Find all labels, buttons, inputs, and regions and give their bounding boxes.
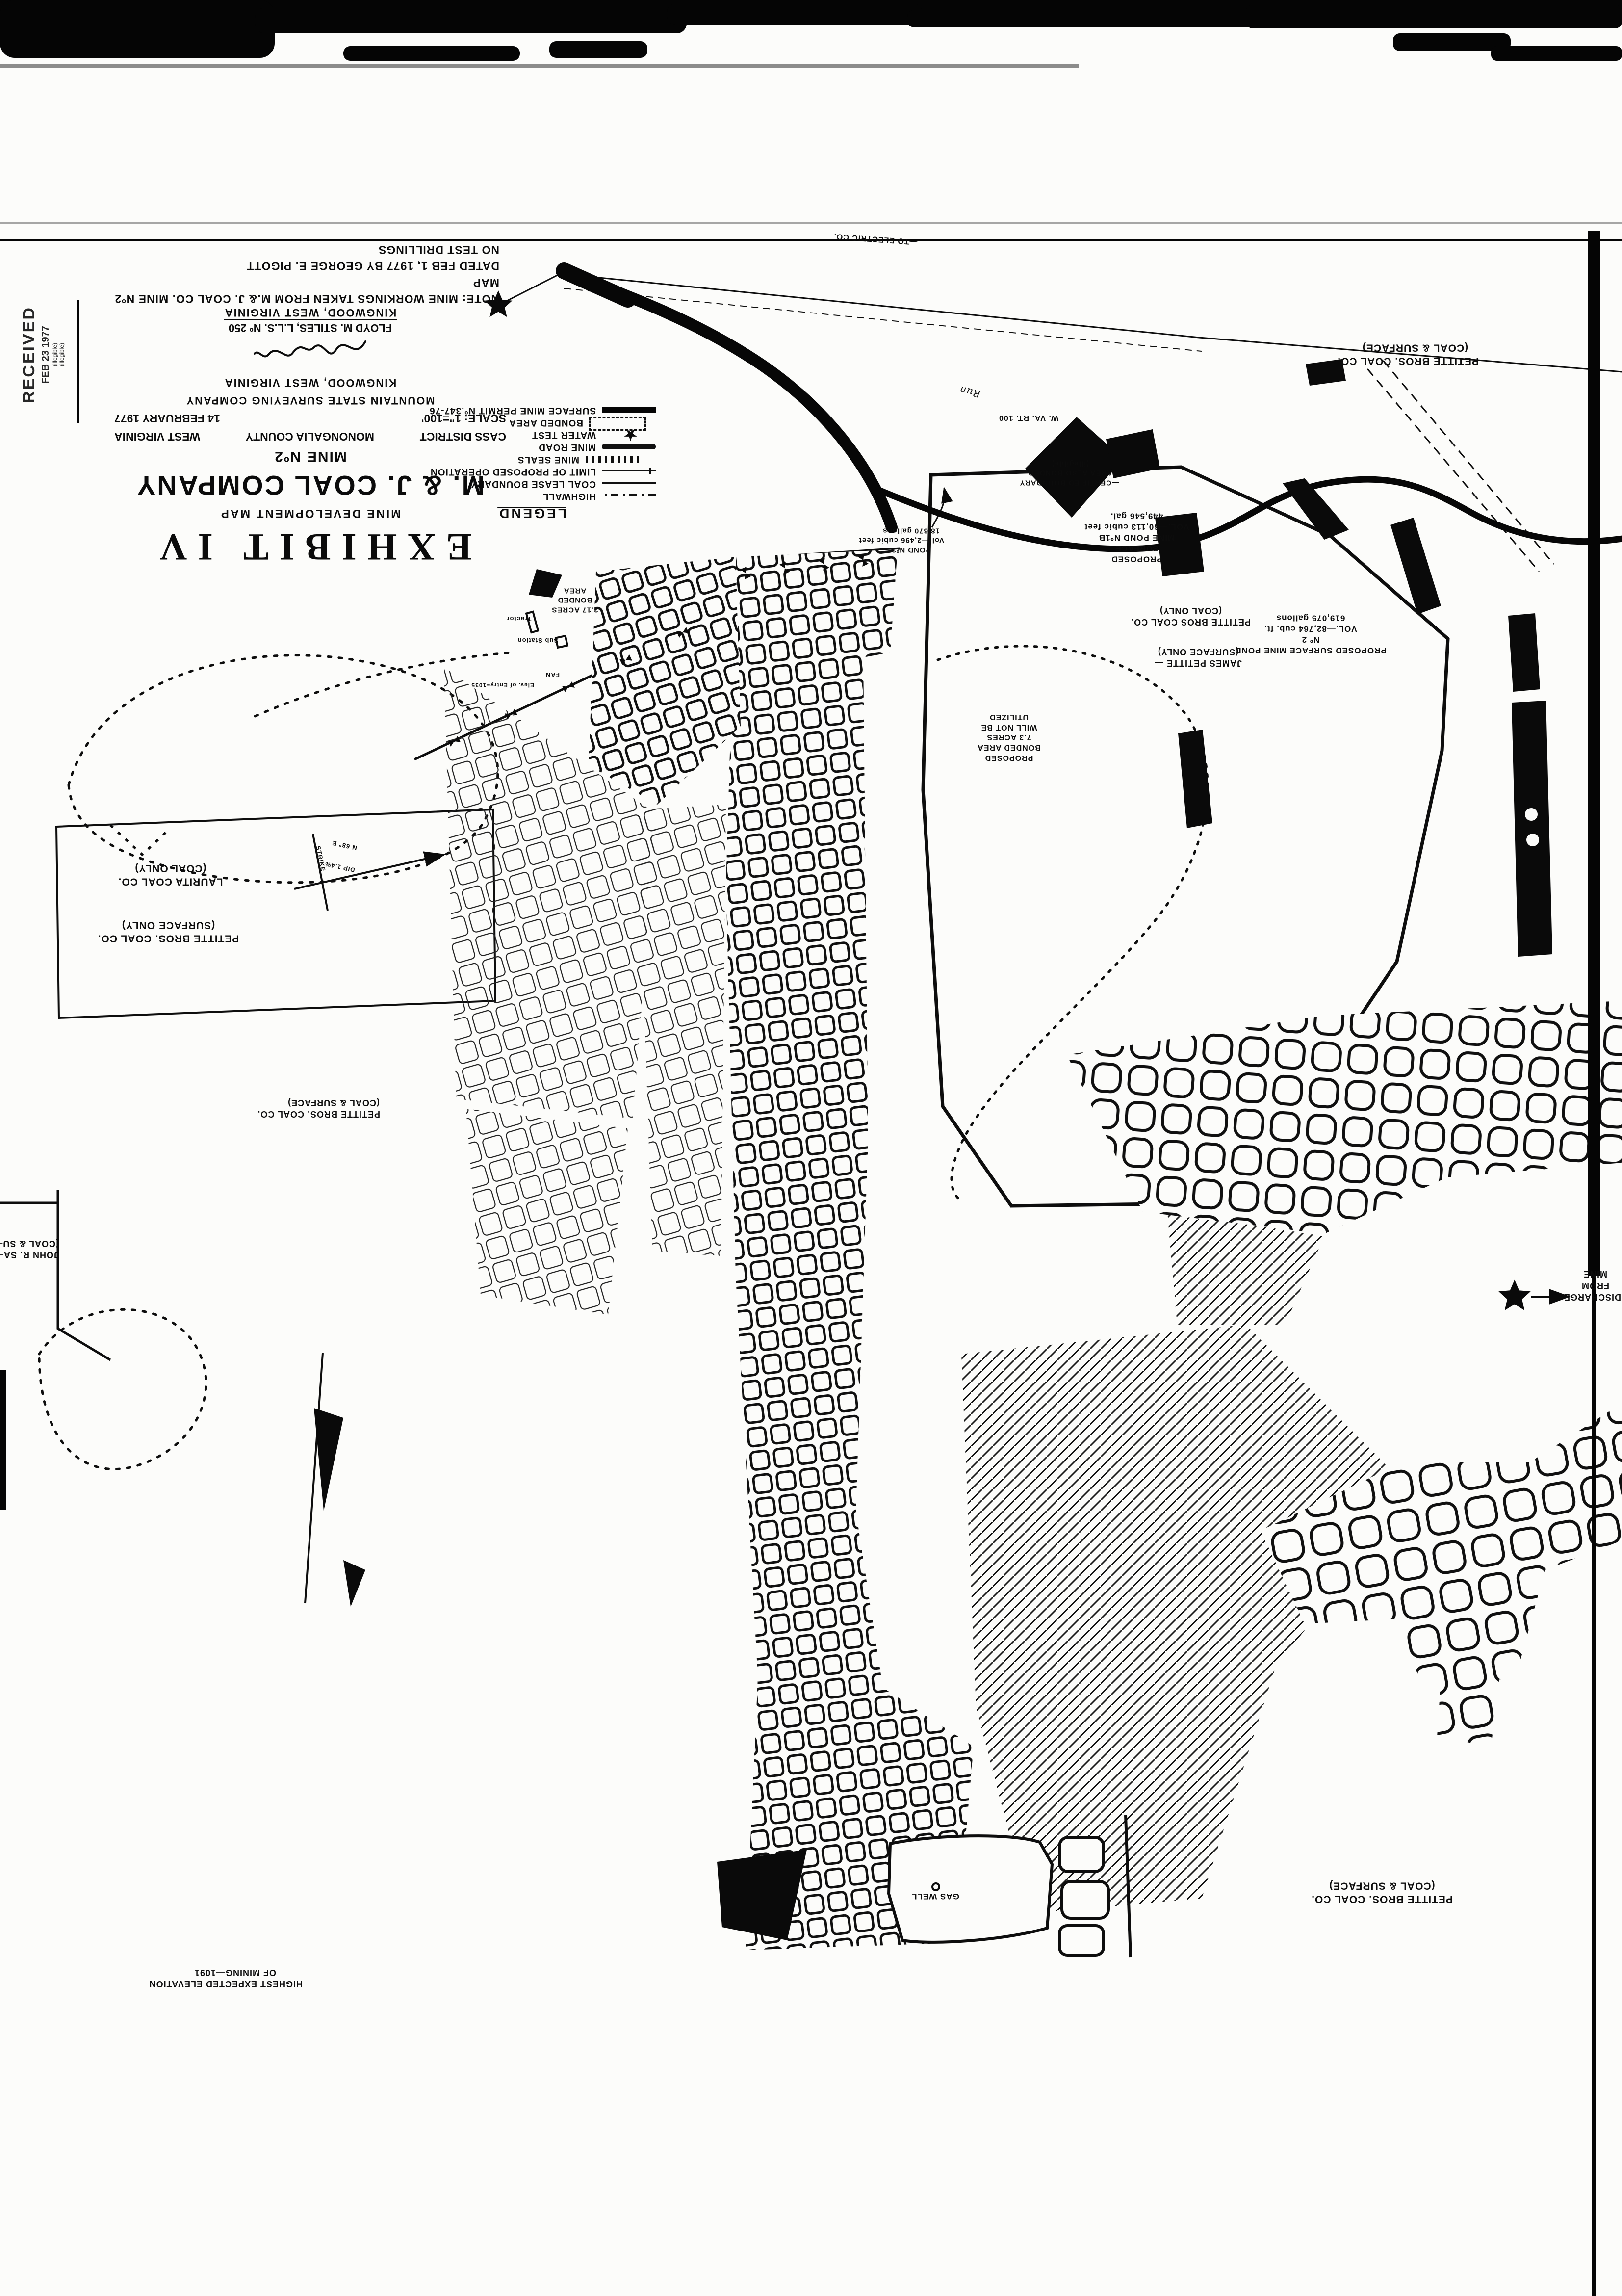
- pond1b-label: PROPOSEDSURFACE MINE POND Nº1BVOL.—60,11…: [1079, 510, 1194, 564]
- pond3-label: POND Nº3Vol.—2,496 cubic feet18,670 gall…: [878, 526, 944, 555]
- scanned-mine-map-sheet: NOTE: MINE WORKINGS TAKEN FROM M.& J. CO…: [0, 0, 1622, 2296]
- legend-title: LEGEND: [408, 505, 656, 521]
- fan-label: FAN: [541, 670, 564, 678]
- permit-line-icon: [602, 407, 656, 413]
- gas-well-label: GAS WELL: [908, 1891, 962, 1902]
- firm-city: KINGWOOD, WEST VIRGINIA: [224, 376, 397, 389]
- legend-item: COAL LEASE BOUNDARY: [408, 478, 656, 490]
- note-line: DATED FEB 1, 1977 BY GEORGE E. PIGOTT: [87, 258, 499, 274]
- entry-elevation-label: Elev. of Entry=1035: [488, 681, 534, 689]
- bonded-217-label: 2.17 ACRESBONDEDAREA: [550, 586, 599, 615]
- surveying-firm: MOUNTAIN STATE SURVEYING COMPANY: [185, 394, 435, 407]
- legend-item: MINE ROAD: [408, 441, 656, 453]
- parcel-label-mid-left: PETITTE BROS. COAL CO.(COAL & SURFACE): [287, 1096, 380, 1120]
- parcel-label-laurita: LAURITA COAL CO.(COAL ONLY): [93, 861, 248, 888]
- note-line: NO TEST DRILLINGS: [87, 241, 499, 258]
- county: MONONGALIA COUNTY: [246, 430, 374, 443]
- route-100-label: W. VA. RT. 100: [997, 412, 1060, 422]
- mine-seals-icon: [585, 456, 639, 463]
- map-note: NOTE: MINE WORKINGS TAKEN FROM M.& J. CO…: [87, 241, 499, 307]
- exhibit-title: EXHIBIT IV: [149, 525, 472, 569]
- highwall-line-icon: [602, 494, 656, 496]
- mine-road-icon: [602, 444, 656, 449]
- legend-item: HIGHWALL: [408, 490, 656, 502]
- received-stamp: RECEIVED FEB 23 1977 (illegible) (illegi…: [18, 303, 92, 407]
- note-line: NOTE: MINE WORKINGS TAKEN FROM M.& J. CO…: [87, 274, 499, 307]
- surveyor-name: FLOYD M. STILES, L.L.S. Nº 250: [224, 319, 397, 334]
- bonded-area-loop-left: [69, 655, 498, 883]
- map-date: 14 FEBRUARY 1977: [114, 412, 220, 425]
- old-workings-right: [1067, 1001, 1622, 1234]
- parcel-label-james-petitte: JAMES PETITTE —(SURFACE ONLY): [1153, 646, 1243, 669]
- legend: LEGEND HIGHWALL COAL LEASE BOUNDARY LIMI…: [408, 403, 656, 521]
- discharge-star: [1498, 1280, 1531, 1310]
- substation-label: Sub Station: [524, 636, 558, 644]
- roads: [564, 271, 1622, 549]
- bonded-area-box-icon: [589, 417, 646, 431]
- main-workings-band: [726, 549, 974, 1950]
- legend-item: MINE SEALS: [408, 453, 656, 466]
- proposed-bonded-label: PROPOSEDBONDED AREA 7.3 ACRESWILL NOT BE…: [967, 711, 1051, 762]
- sheet-edge-line: [0, 239, 1622, 241]
- legend-item: BONDED AREA: [408, 417, 656, 429]
- stamp-text: RECEIVED: [18, 305, 40, 405]
- surveyor-signature-scribble: [252, 334, 369, 368]
- parcel-label-left-surface: PETITTE BROS. COAL CO.(SURFACE ONLY): [82, 918, 254, 945]
- legend-item: SURFACE MINE PERMIT Nº.347-76: [408, 404, 656, 417]
- tractor-label: Tractor: [504, 614, 534, 623]
- upper-fan-workings: [589, 557, 741, 805]
- highest-elevation-note: HIGHEST EXPECTED ELEVATIONOF MINING—1091: [168, 1966, 303, 1989]
- surveyor-city: KINGWOOD, WEST VIRGINIA: [224, 306, 397, 319]
- certified-boundary-label: —CERTIFIED BOUNDARYAREA ALSO BONDED(ille…: [1021, 459, 1119, 488]
- limit-line-icon: [602, 470, 656, 471]
- pond2-label: PROPOSED SURFACE MINE PONDNº 2 VOL.—82,7…: [1232, 612, 1389, 655]
- discharge-label: DISCHARGEFROMMINE: [1570, 1268, 1621, 1303]
- legend-item: LIMIT OF PROPOSED OPERATION: [408, 466, 656, 478]
- right-edge-bar: [1588, 231, 1600, 1276]
- parcel-label-john-r: JOHN R. SA—(COAL & SU—: [0, 1237, 59, 1260]
- state: WEST VIRGINIA: [114, 430, 200, 443]
- parcel-label-top-right: PETITTE BROS. COAL CO.(COAL & SURFACE): [1351, 341, 1479, 368]
- parcel-label-bottom-right: PETITTE BROS. COAL CO.(COAL & SURFACE): [1307, 1879, 1457, 1906]
- scale-wedges: [314, 1408, 365, 1607]
- laurita-parcel-box: [56, 809, 495, 1018]
- lease-boundary-line-icon: [602, 482, 656, 484]
- map-type: MINE DEVELOPMENT MAP: [220, 506, 401, 520]
- mine-number: MINE Nº2: [274, 448, 347, 465]
